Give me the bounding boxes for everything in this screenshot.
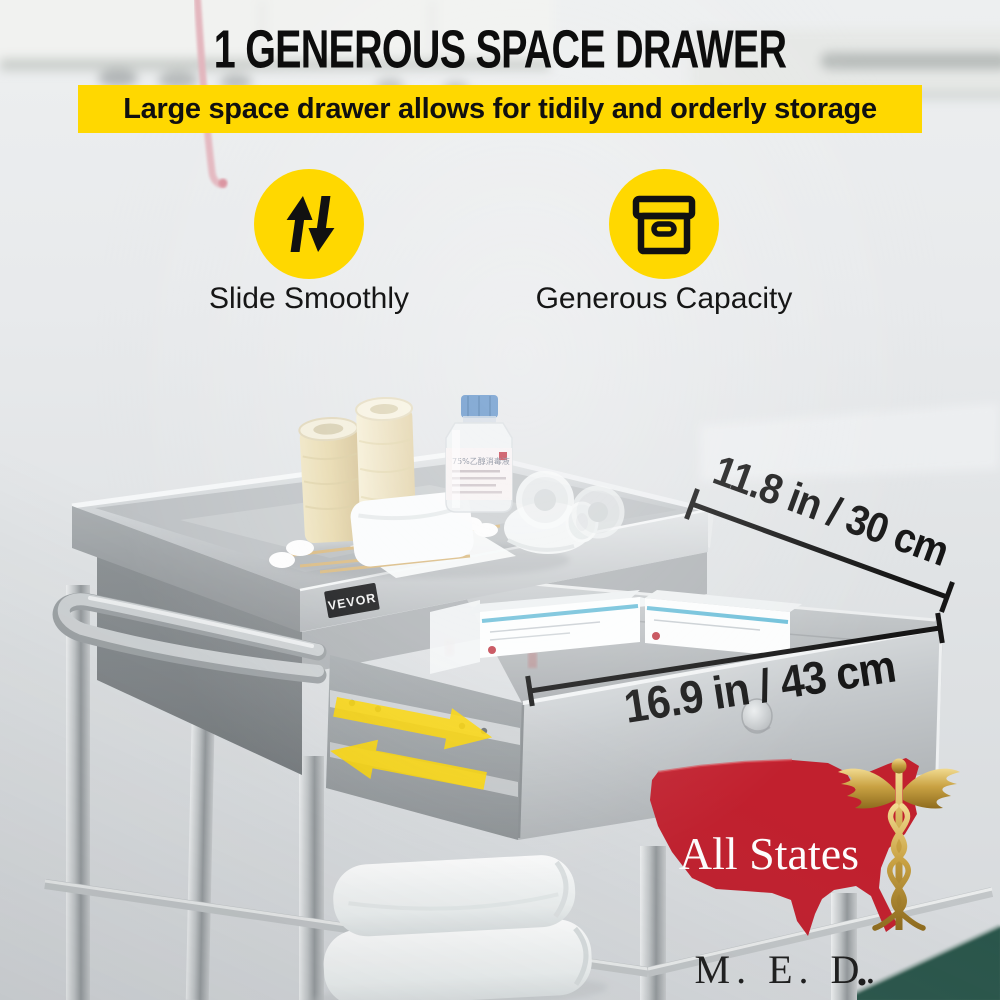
disinfectant-bottle: 75%乙醇消毒液 — [446, 395, 512, 512]
speck — [859, 979, 866, 986]
feature-slide-smoothly-label: Slide Smoothly — [179, 282, 439, 316]
storage-box-icon — [609, 169, 719, 279]
vendor-name: All States — [679, 828, 859, 879]
feature-slide-smoothly — [254, 169, 364, 279]
vendor-logo: All States M. E. D. — [650, 758, 960, 992]
up-down-arrows-icon — [254, 169, 364, 279]
medical-supplies: 75%乙醇消毒液 — [269, 395, 622, 578]
product-infographic: VEVOR — [0, 0, 1000, 1000]
folded-towels — [302, 852, 609, 1000]
feature-generous-capacity — [609, 169, 719, 279]
vendor-abbreviation: M. E. D. — [695, 947, 882, 992]
page-title: 1 GENEROUS SPACE DRAWER — [120, 19, 880, 81]
cart-photo: VEVOR — [0, 0, 1000, 1000]
subtitle-banner: Large space drawer allows for tidily and… — [78, 85, 922, 133]
feature-generous-capacity-label: Generous Capacity — [514, 282, 814, 316]
bottle-label: 75%乙醇消毒液 — [452, 456, 510, 466]
